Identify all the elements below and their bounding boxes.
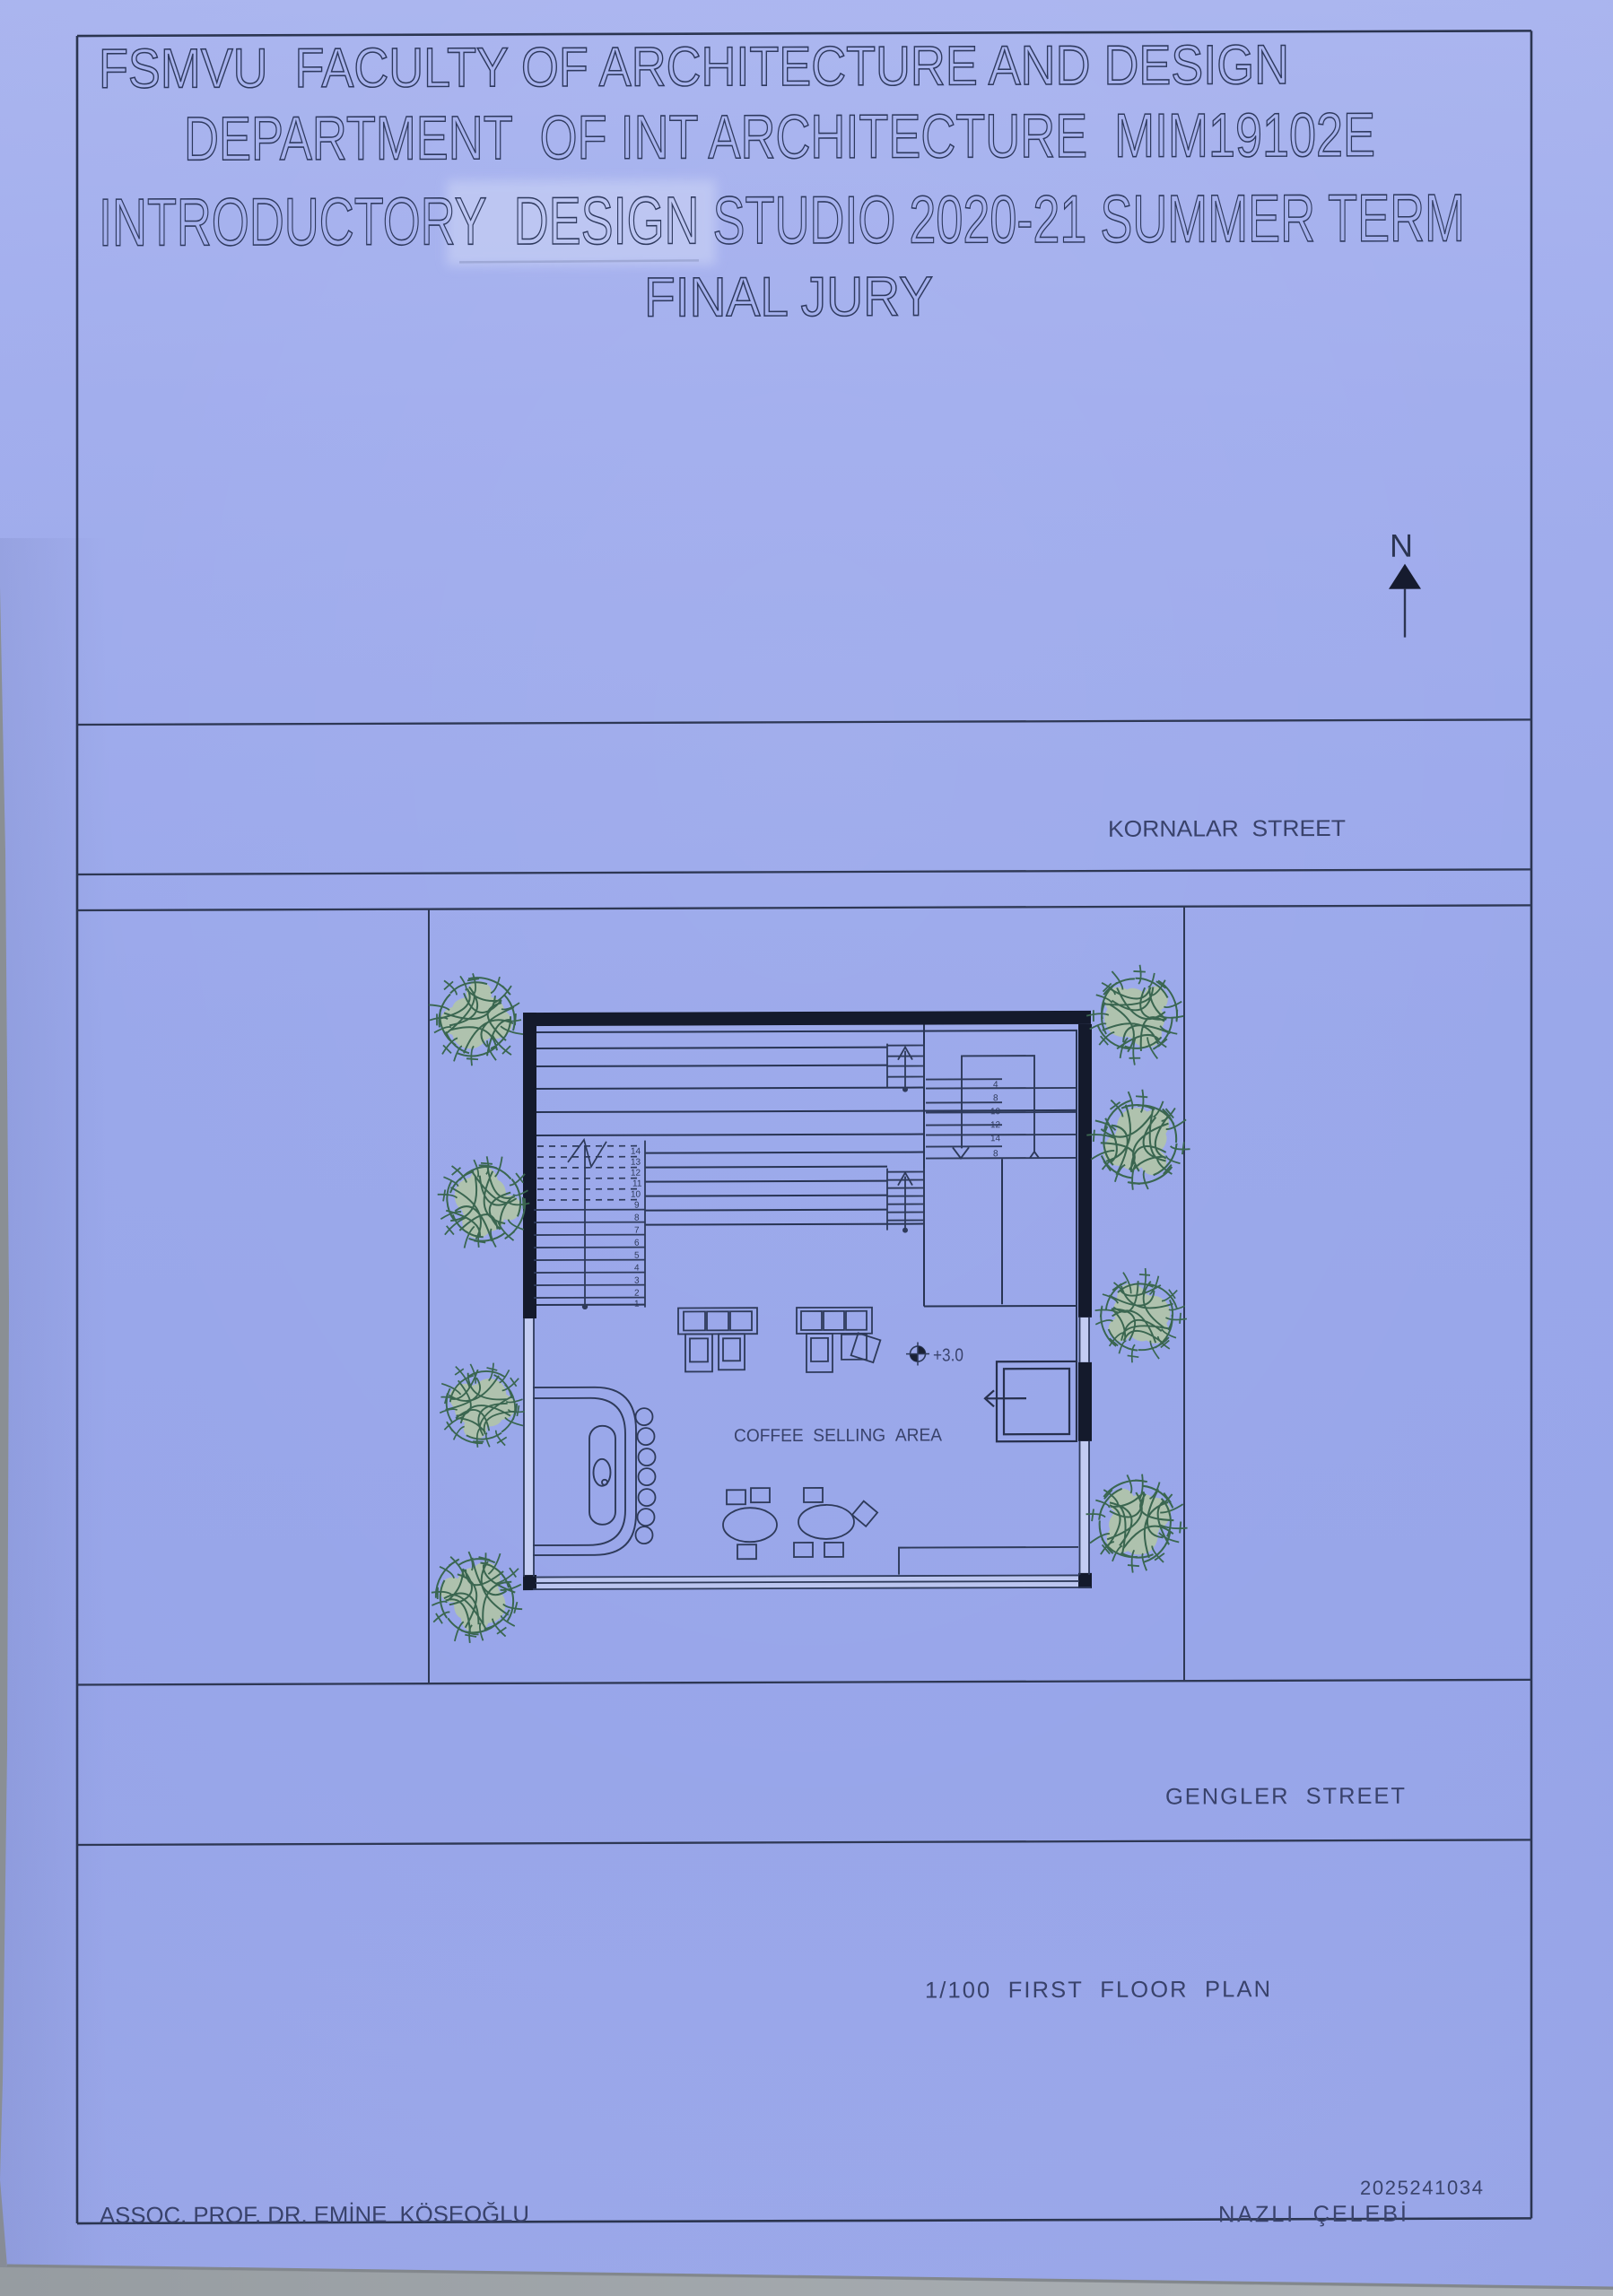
svg-text:KORNALAR STREET: KORNALAR STREET — [1108, 816, 1346, 842]
svg-text:13: 13 — [631, 1158, 641, 1168]
svg-text:NAZLI ÇELEBİ: NAZLI ÇELEBİ — [1218, 2201, 1407, 2228]
svg-text:8: 8 — [634, 1213, 640, 1223]
svg-text:FINAL JURY: FINAL JURY — [644, 265, 933, 328]
svg-text:COFFEE SELLING AREA: COFFEE SELLING AREA — [734, 1425, 943, 1446]
svg-text:1: 1 — [634, 1300, 640, 1309]
svg-text:2: 2 — [634, 1289, 640, 1299]
svg-text:8: 8 — [993, 1093, 998, 1103]
svg-text:14: 14 — [631, 1147, 641, 1157]
svg-text:DEPARTMENT OF INT ARCHITECTUR: DEPARTMENT OF INT ARCHITECTURE MIM19102E — [184, 100, 1375, 174]
svg-text:INTRODUCTORY DESIGN STUDIO 20: INTRODUCTORY DESIGN STUDIO 2020-21 SUMME… — [99, 179, 1465, 259]
svg-text:N: N — [1390, 527, 1413, 564]
svg-text:10: 10 — [631, 1190, 641, 1200]
svg-text:2025241034: 2025241034 — [1360, 2176, 1483, 2198]
svg-text:1/100 FIRST FLOOR PLAN: 1/100 FIRST FLOOR PLAN — [925, 1977, 1270, 2003]
svg-text:10: 10 — [990, 1107, 1001, 1117]
svg-text:4: 4 — [634, 1264, 640, 1274]
svg-text:6: 6 — [634, 1239, 640, 1248]
svg-text:12: 12 — [631, 1169, 641, 1178]
svg-text:FSMVU FACULTY OF ARCHITECTURE: FSMVU FACULTY OF ARCHITECTURE AND DESIGN — [99, 34, 1289, 100]
svg-text:ASSOC. PROF. DR. EMİNE KÖSEOĞ: ASSOC. PROF. DR. EMİNE KÖSEOĞLU — [100, 2201, 529, 2229]
svg-text:3: 3 — [634, 1276, 640, 1286]
svg-text:12: 12 — [990, 1120, 1001, 1130]
svg-text:4: 4 — [993, 1080, 998, 1090]
svg-text:+3.0: +3.0 — [933, 1345, 963, 1365]
svg-text:5: 5 — [634, 1251, 640, 1261]
svg-text:8: 8 — [993, 1149, 998, 1159]
svg-text:GENGLER STREET: GENGLER STREET — [1165, 1784, 1405, 1810]
svg-text:14: 14 — [990, 1134, 1001, 1144]
svg-text:9: 9 — [634, 1201, 640, 1211]
svg-text:11: 11 — [632, 1179, 642, 1189]
svg-text:7: 7 — [634, 1226, 640, 1236]
